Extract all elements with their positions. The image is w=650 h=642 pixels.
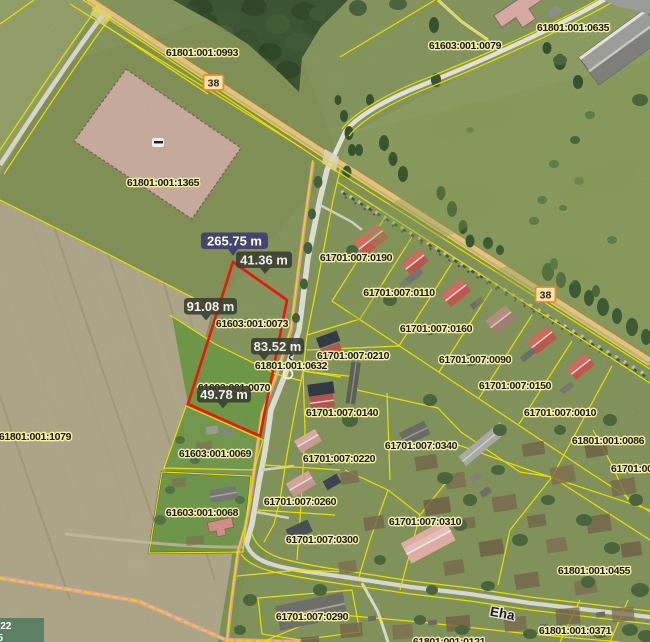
svg-text:61701:007:0140: 61701:007:0140: [306, 407, 379, 419]
svg-text:61701:007:0260: 61701:007:0260: [264, 496, 337, 508]
svg-text:91.08 m: 91.08 m: [187, 299, 235, 314]
svg-text:61801:001:0455: 61801:001:0455: [558, 565, 631, 577]
svg-text:61801:001:1079: 61801:001:1079: [0, 431, 72, 443]
svg-text:61701:007:0290: 61701:007:0290: [276, 611, 349, 623]
svg-text:61603:001:0073: 61603:001:0073: [216, 318, 289, 330]
svg-text:61603:001:0068: 61603:001:0068: [166, 507, 239, 519]
svg-text:61701:007:0210: 61701:007:0210: [317, 350, 390, 362]
svg-text:61701:007:0190: 61701:007:0190: [320, 252, 393, 264]
svg-text:61701:007:0220: 61701:007:0220: [303, 453, 376, 465]
svg-text:61801:001:0993: 61801:001:0993: [166, 47, 239, 59]
svg-text:61701:007:0090: 61701:007:0090: [439, 354, 512, 366]
svg-text:61701:00: 61701:00: [611, 463, 650, 475]
svg-text:61701:007:0150: 61701:007:0150: [479, 380, 552, 392]
svg-text:61701:007:0160: 61701:007:0160: [400, 323, 473, 335]
svg-text:41.36 m: 41.36 m: [240, 253, 288, 268]
svg-text:265.75 m: 265.75 m: [207, 234, 262, 249]
svg-text:61603:001:0069: 61603:001:0069: [179, 448, 252, 460]
svg-text:38: 38: [208, 78, 220, 90]
svg-text:61801:001:0635: 61801:001:0635: [537, 22, 610, 34]
svg-text:61801:001:0121: 61801:001:0121: [413, 636, 486, 642]
svg-text:61701:007:0340: 61701:007:0340: [385, 440, 458, 452]
svg-text:49.78 m: 49.78 m: [200, 387, 248, 402]
svg-text:61603:001:0079: 61603:001:0079: [429, 40, 502, 52]
svg-text:83.52 m: 83.52 m: [254, 339, 302, 354]
svg-text:61801:001:0371: 61801:001:0371: [539, 625, 612, 637]
svg-text:61701:007:0010: 61701:007:0010: [524, 407, 597, 419]
svg-text:61701:007:0300: 61701:007:0300: [286, 534, 359, 546]
svg-text:61801:001:0086: 61801:001:0086: [572, 435, 645, 447]
svg-text:38: 38: [540, 290, 552, 302]
svg-text:61701:007:0310: 61701:007:0310: [389, 516, 462, 528]
svg-text:61801:001:1365: 61801:001:1365: [127, 177, 200, 189]
svg-text:35: 35: [0, 633, 4, 642]
svg-text:1.22: 1.22: [0, 621, 12, 632]
svg-text:61701:007:0110: 61701:007:0110: [363, 287, 435, 299]
